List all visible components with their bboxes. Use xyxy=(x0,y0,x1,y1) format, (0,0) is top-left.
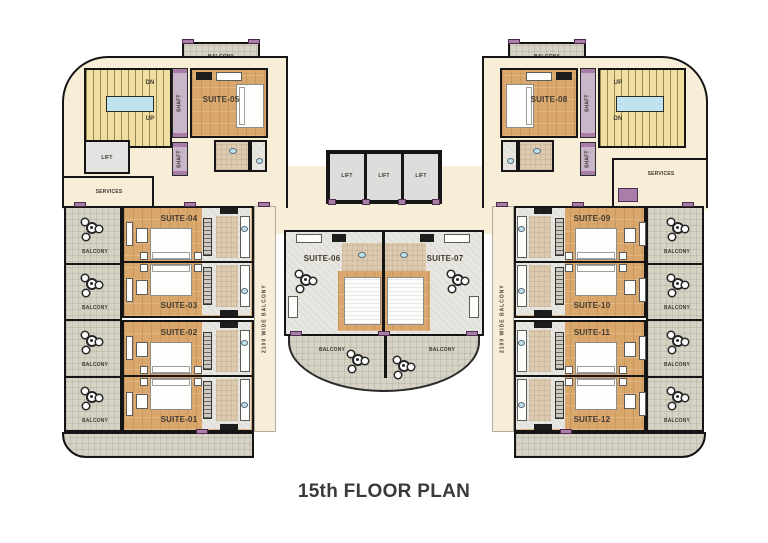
tv-unit xyxy=(534,322,552,328)
balcony-divider xyxy=(66,263,120,265)
toilet-icon xyxy=(518,226,525,232)
balcony-table-icon xyxy=(672,391,684,403)
suite-04-label: SUITE-04 xyxy=(134,215,224,223)
floor-plan: BALCONY BALCONY DN UP SHAFT SHAFT SUITE-… xyxy=(0,0,768,543)
sofa xyxy=(126,336,133,360)
tv-unit xyxy=(534,310,552,316)
services-label-right: SERVICES xyxy=(622,172,700,177)
services-wall-v xyxy=(152,176,154,208)
bed xyxy=(506,84,534,128)
stairs-dn-label: DN xyxy=(134,80,166,86)
chair xyxy=(136,342,148,357)
balcony-bottom-left xyxy=(62,432,254,458)
door-jamb xyxy=(248,39,260,44)
balcony-divider xyxy=(648,376,702,378)
pillow xyxy=(239,87,245,125)
pillow xyxy=(152,379,190,386)
dresser xyxy=(216,72,242,81)
toilet-icon xyxy=(229,148,237,154)
suite-pair-02-01: SUITE-02 SUITE-01 xyxy=(122,320,254,432)
shaft-left-upper: SHAFT xyxy=(172,68,188,138)
suite-pair-09-10: SUITE-09 SUITE-10 xyxy=(514,206,646,318)
balcony-column-left: BALCONY BALCONY BALCONY BALCONY xyxy=(64,206,122,432)
nightstand xyxy=(194,366,202,374)
lift-1: LIFT xyxy=(330,154,364,200)
balcony-label: BALCONY xyxy=(70,306,120,311)
chair xyxy=(136,228,148,243)
bathroom2-suite-05 xyxy=(250,140,267,172)
toilet-icon xyxy=(533,148,541,154)
pillow xyxy=(577,252,615,259)
balcony-label: BALCONY xyxy=(652,306,702,311)
lift-3: LIFT xyxy=(404,154,438,200)
balcony-divider xyxy=(648,319,702,321)
chair xyxy=(624,394,636,409)
bed xyxy=(387,277,424,325)
balcony-label: BALCONY xyxy=(412,348,472,353)
kitchenette-counter xyxy=(556,72,572,80)
tv-unit xyxy=(534,208,552,214)
door-jamb xyxy=(290,331,302,336)
bath-fixtures xyxy=(240,265,250,307)
chair xyxy=(624,228,636,243)
nightstand xyxy=(140,264,148,272)
balcony-table-icon xyxy=(86,278,98,290)
tv-unit xyxy=(220,208,238,214)
nightstand xyxy=(619,264,627,272)
door-jamb xyxy=(432,199,440,205)
lift-room-left: LIFT xyxy=(84,140,130,174)
suite-08-label: SUITE-08 xyxy=(520,96,578,104)
sofa xyxy=(126,392,133,416)
shaft-right-upper: SHAFT xyxy=(580,68,596,138)
wardrobe xyxy=(555,218,564,256)
bathroom-suite-05 xyxy=(214,140,250,172)
door-jamb xyxy=(328,199,336,205)
balcony-divider xyxy=(384,336,387,378)
console xyxy=(444,234,470,243)
tv-unit xyxy=(220,322,238,328)
bathroom xyxy=(216,379,238,421)
pillow xyxy=(577,265,615,272)
chair xyxy=(624,280,636,295)
suite-11-label: SUITE-11 xyxy=(547,329,637,337)
suite-05-label: SUITE-05 xyxy=(192,96,250,104)
bath-fixtures xyxy=(240,216,250,258)
services-label-left: SERVICES xyxy=(70,190,148,195)
balcony-divider xyxy=(66,319,120,321)
wide-balcony-label: 2100 WIDE BALCONY xyxy=(255,207,275,431)
chair xyxy=(136,280,148,295)
balcony-divider xyxy=(648,263,702,265)
dresser xyxy=(526,72,552,81)
suite-06-label: SUITE-06 xyxy=(286,255,358,263)
sink-icon xyxy=(507,158,514,164)
nightstand xyxy=(565,252,573,260)
console xyxy=(296,234,322,243)
bathroom xyxy=(216,265,238,307)
counter xyxy=(332,234,346,242)
nightstand xyxy=(619,252,627,260)
kitchenette-counter xyxy=(196,72,212,80)
shaft-right-lower: SHAFT xyxy=(580,142,596,176)
services-wall-h xyxy=(62,176,154,178)
pillow xyxy=(152,252,190,259)
nightstand xyxy=(140,378,148,386)
balcony-label: BALCONY xyxy=(302,348,362,353)
door-jamb xyxy=(362,199,370,205)
balcony-label: BALCONY xyxy=(652,419,702,424)
door-jamb xyxy=(398,199,406,205)
bath-fixtures xyxy=(517,265,527,307)
bathroom xyxy=(529,379,551,421)
lift-label: LIFT xyxy=(367,174,401,179)
tv-unit xyxy=(220,310,238,316)
sink-icon xyxy=(256,158,263,164)
bathroom xyxy=(529,265,551,307)
nightstand xyxy=(194,252,202,260)
services-wall-v xyxy=(612,158,614,208)
door-jamb xyxy=(466,331,478,336)
suite-03-label: SUITE-03 xyxy=(134,302,224,310)
toilet-icon xyxy=(400,252,408,258)
sofa xyxy=(639,278,646,302)
door-jamb xyxy=(196,429,208,434)
party-wall xyxy=(516,375,644,377)
toilet-icon xyxy=(241,226,248,232)
pillow xyxy=(526,87,532,125)
sofa xyxy=(639,392,646,416)
wardrobe xyxy=(555,332,564,370)
bathroom2-suite-08 xyxy=(501,140,518,172)
toilet-icon xyxy=(241,402,248,408)
table-icon xyxy=(300,274,312,286)
wide-balcony-right: 2100 WIDE BALCONY xyxy=(492,206,514,432)
door-jamb xyxy=(572,202,584,207)
party-wall xyxy=(516,261,644,263)
corridor-center xyxy=(254,200,514,234)
lift-label: LIFT xyxy=(404,174,438,179)
lift-label: LIFT xyxy=(86,156,128,161)
suite-01-label: SUITE-01 xyxy=(134,416,224,424)
center-suites-block: SUITE-06 SUITE-07 xyxy=(284,230,484,336)
sofa xyxy=(126,278,133,302)
nightstand xyxy=(194,378,202,386)
balcony-table-icon xyxy=(672,278,684,290)
suite-10-label: SUITE-10 xyxy=(547,302,637,310)
balcony-label: BALCONY xyxy=(70,363,120,368)
wide-balcony-label: 2100 WIDE BALCONY xyxy=(493,207,513,431)
tv-unit xyxy=(534,424,552,430)
room-suite-05: SUITE-05 xyxy=(190,68,268,138)
nightstand xyxy=(565,366,573,374)
nightstand xyxy=(565,264,573,272)
balcony-table-icon xyxy=(352,354,364,366)
door-jamb xyxy=(378,331,390,336)
chair xyxy=(624,342,636,357)
party-wall xyxy=(124,261,252,263)
stair-landing-right xyxy=(616,96,664,112)
nightstand xyxy=(565,378,573,386)
stair-landing-left xyxy=(106,96,154,112)
toilet-icon xyxy=(241,340,248,346)
door-jamb xyxy=(258,202,270,207)
table-icon xyxy=(452,274,464,286)
stairs-up-label: UP xyxy=(602,80,634,86)
bath-fixtures xyxy=(240,330,250,372)
counter xyxy=(420,234,434,242)
balcony-table-icon xyxy=(86,391,98,403)
toilet-icon xyxy=(518,340,525,346)
bath-fixtures xyxy=(517,330,527,372)
suite-09-label: SUITE-09 xyxy=(547,215,637,223)
nightstand xyxy=(194,264,202,272)
chair xyxy=(136,394,148,409)
lift-2: LIFT xyxy=(367,154,401,200)
pillow xyxy=(577,379,615,386)
balcony-table-icon xyxy=(398,360,410,372)
suite-pair-04-03: SUITE-04 SUITE-03 xyxy=(122,206,254,318)
balcony-table-icon xyxy=(86,335,98,347)
bath-fixtures xyxy=(517,379,527,421)
shaft-left-lower: SHAFT xyxy=(172,142,188,176)
balcony-column-right: BALCONY BALCONY BALCONY BALCONY xyxy=(646,206,704,432)
door-jamb xyxy=(508,39,520,44)
party-wall xyxy=(382,232,385,333)
pillow xyxy=(577,366,615,373)
door-jamb xyxy=(574,39,586,44)
suite-12-label: SUITE-12 xyxy=(547,416,637,424)
balcony-table-icon xyxy=(86,222,98,234)
pillow xyxy=(152,265,190,272)
plan-title: 15th FLOOR PLAN xyxy=(0,481,768,503)
door-jamb xyxy=(74,202,86,207)
wide-balcony-left: 2100 WIDE BALCONY xyxy=(254,206,276,432)
sofa xyxy=(126,222,133,246)
balcony-table-icon xyxy=(672,335,684,347)
bed xyxy=(236,84,264,128)
stairs-up-label: UP xyxy=(134,116,166,122)
balcony-table-icon xyxy=(672,222,684,234)
door-jamb xyxy=(682,202,694,207)
sofa xyxy=(469,296,479,318)
wardrobe xyxy=(203,218,212,256)
lift-label: LIFT xyxy=(330,174,364,179)
sofa xyxy=(288,296,298,318)
wardrobe xyxy=(203,332,212,370)
nightstand xyxy=(619,378,627,386)
wardrobe xyxy=(203,267,212,305)
party-wall xyxy=(124,375,252,377)
door-jamb xyxy=(184,202,196,207)
wardrobe xyxy=(555,381,564,419)
services-wall-h xyxy=(614,158,708,160)
toilet-icon xyxy=(241,288,248,294)
door-jamb xyxy=(182,39,194,44)
door-jamb xyxy=(560,429,572,434)
pillow xyxy=(152,366,190,373)
wardrobe xyxy=(203,381,212,419)
suite-07-label: SUITE-07 xyxy=(409,255,481,263)
sofa xyxy=(639,336,646,360)
balcony-center: BALCONY BALCONY xyxy=(288,336,480,392)
bath-fixtures xyxy=(240,379,250,421)
tv-unit xyxy=(220,424,238,430)
balcony-label: BALCONY xyxy=(70,419,120,424)
door-jamb xyxy=(496,202,508,207)
balcony-label: BALCONY xyxy=(652,363,702,368)
toilet-icon xyxy=(518,402,525,408)
balcony-divider xyxy=(66,376,120,378)
bathroom-suite-08 xyxy=(518,140,554,172)
duct-box xyxy=(618,188,638,202)
suite-pair-11-12: SUITE-11 SUITE-12 xyxy=(514,320,646,432)
nightstand xyxy=(140,252,148,260)
suite-02-label: SUITE-02 xyxy=(134,329,224,337)
toilet-icon xyxy=(358,252,366,258)
balcony-bottom-right xyxy=(514,432,706,458)
stairs-dn-label: DN xyxy=(602,116,634,122)
sofa xyxy=(639,222,646,246)
bath-fixtures xyxy=(517,216,527,258)
wardrobe xyxy=(555,267,564,305)
toilet-icon xyxy=(518,288,525,294)
balcony-label: BALCONY xyxy=(70,250,120,255)
nightstand xyxy=(140,366,148,374)
nightstand xyxy=(619,366,627,374)
balcony-label: BALCONY xyxy=(652,250,702,255)
room-suite-08: SUITE-08 xyxy=(500,68,578,138)
bed xyxy=(344,277,381,325)
